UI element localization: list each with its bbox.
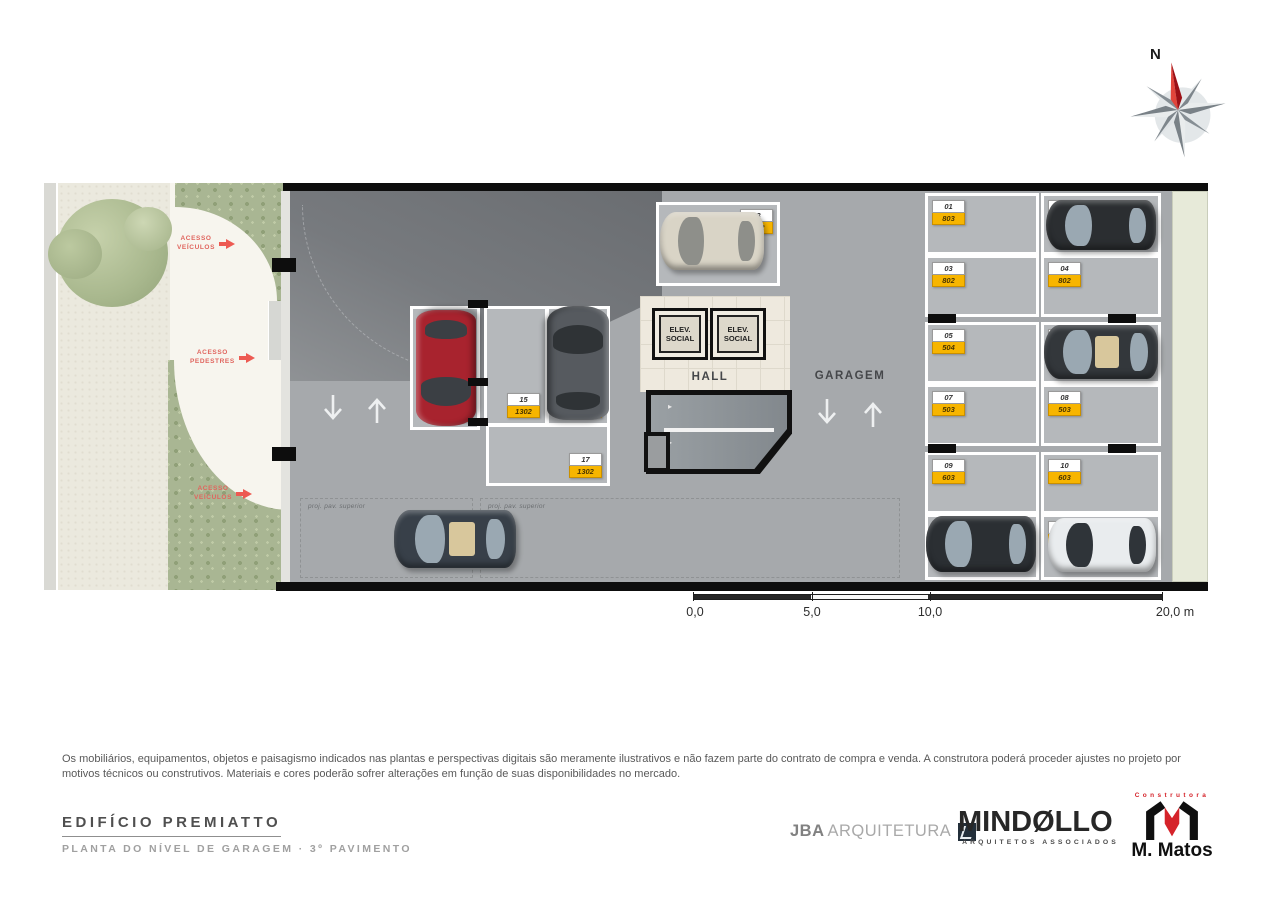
garagem-label: GARAGEM <box>800 370 900 382</box>
parking-space-09: 09603 <box>925 452 1039 514</box>
car-space-12 <box>1048 518 1156 572</box>
vehicle-access-label: ACESSOVEÍCULOS <box>194 485 252 503</box>
mindello-logo: MINDØLLO ARQUITETOS ASSOCIADOS <box>958 808 1123 846</box>
pillar <box>468 418 488 426</box>
parking-space-05: 05504 <box>925 322 1039 384</box>
disclaimer-text: Os mobiliários, equipamentos, objetos e … <box>62 752 1215 782</box>
garden-area: ACESSOVEÍCULOS ACESSOPEDESTRES ACESSOVEÍ… <box>42 183 290 590</box>
car-space-02 <box>1046 200 1156 250</box>
mmatos-logo: Construtora M. Matos <box>1124 792 1220 860</box>
pillar <box>1108 314 1136 323</box>
mmatos-mark-icon <box>1144 800 1200 840</box>
side-landscape-strip <box>1172 191 1208 582</box>
car-space-11 <box>926 516 1036 572</box>
down-arrow-icon <box>814 396 840 430</box>
parking-space-03: 03802 <box>925 255 1039 317</box>
red-arrow-icon <box>239 353 255 363</box>
wall-bottom <box>276 582 1208 591</box>
jba-arquitetura-logo: JBA ARQUITETURA <box>790 822 976 841</box>
service-closet <box>644 432 670 472</box>
scale-tick-label: 10,0 <box>918 605 942 619</box>
social-elevator: ELEV.SOCIAL <box>710 308 766 360</box>
up-arrow-icon <box>860 396 886 430</box>
parking-space-17: 171302 <box>486 424 610 486</box>
compass-star-icon <box>1124 56 1232 164</box>
wall-top <box>283 183 1208 191</box>
car-aisle <box>394 510 516 568</box>
entrance-gap <box>281 191 290 582</box>
pillar <box>1108 444 1136 453</box>
pillar <box>468 300 488 308</box>
project-title: EDIFÍCIO PREMIATTO <box>62 814 281 837</box>
pillar <box>928 314 956 323</box>
parking-space-15: 151302 <box>484 306 548 426</box>
tree-icon <box>56 199 168 307</box>
car-space-06 <box>1044 325 1158 379</box>
red-arrow-icon <box>219 239 235 249</box>
parking-space-04: 04802 <box>1041 255 1161 317</box>
parking-space-10: 10603 <box>1041 452 1161 514</box>
pillar <box>468 378 488 386</box>
scale-tick-label: 0,0 <box>686 605 703 619</box>
upper-floor-projection: proj. pav. superior <box>480 498 900 578</box>
pillar <box>272 447 296 461</box>
social-elevator: ELEV.SOCIAL <box>652 308 708 360</box>
plan-subtitle: PLANTA DO NÍVEL DE GARAGEM · 3º PAVIMENT… <box>62 843 412 855</box>
north-label: N <box>1150 46 1161 63</box>
vehicle-access-label: ACESSOVEÍCULOS <box>177 235 235 253</box>
planting-bed <box>168 360 290 590</box>
pillar <box>272 258 296 272</box>
car-space-14 <box>416 310 476 426</box>
hall-label: HALL <box>660 371 760 383</box>
stair-rail <box>664 428 774 432</box>
pillar <box>928 444 956 453</box>
scale-bar: 0,0 5,0 10,0 20,0 m <box>693 592 1163 620</box>
up-arrow-icon <box>364 392 390 426</box>
car-space-16 <box>547 306 609 420</box>
scale-tick-label: 5,0 <box>803 605 820 619</box>
parking-space-01: 01803 <box>925 193 1039 255</box>
scale-tick-label: 20,0 m <box>1156 605 1194 619</box>
title-block: EDIFÍCIO PREMIATTO PLANTA DO NÍVEL DE GA… <box>62 814 412 855</box>
car-space-13 <box>660 212 764 270</box>
red-arrow-icon <box>236 489 252 499</box>
pedestrian-access-label: ACESSOPEDESTRES <box>190 349 255 367</box>
down-arrow-icon <box>320 392 346 426</box>
parking-space-07: 07503 <box>925 384 1039 446</box>
compass-rose: N <box>1118 44 1230 162</box>
parking-space-08: 08503 <box>1041 384 1161 446</box>
floor-plan-sheet: N ACESSOVEÍCULOS ACESSOPEDESTRES <box>0 0 1280 905</box>
